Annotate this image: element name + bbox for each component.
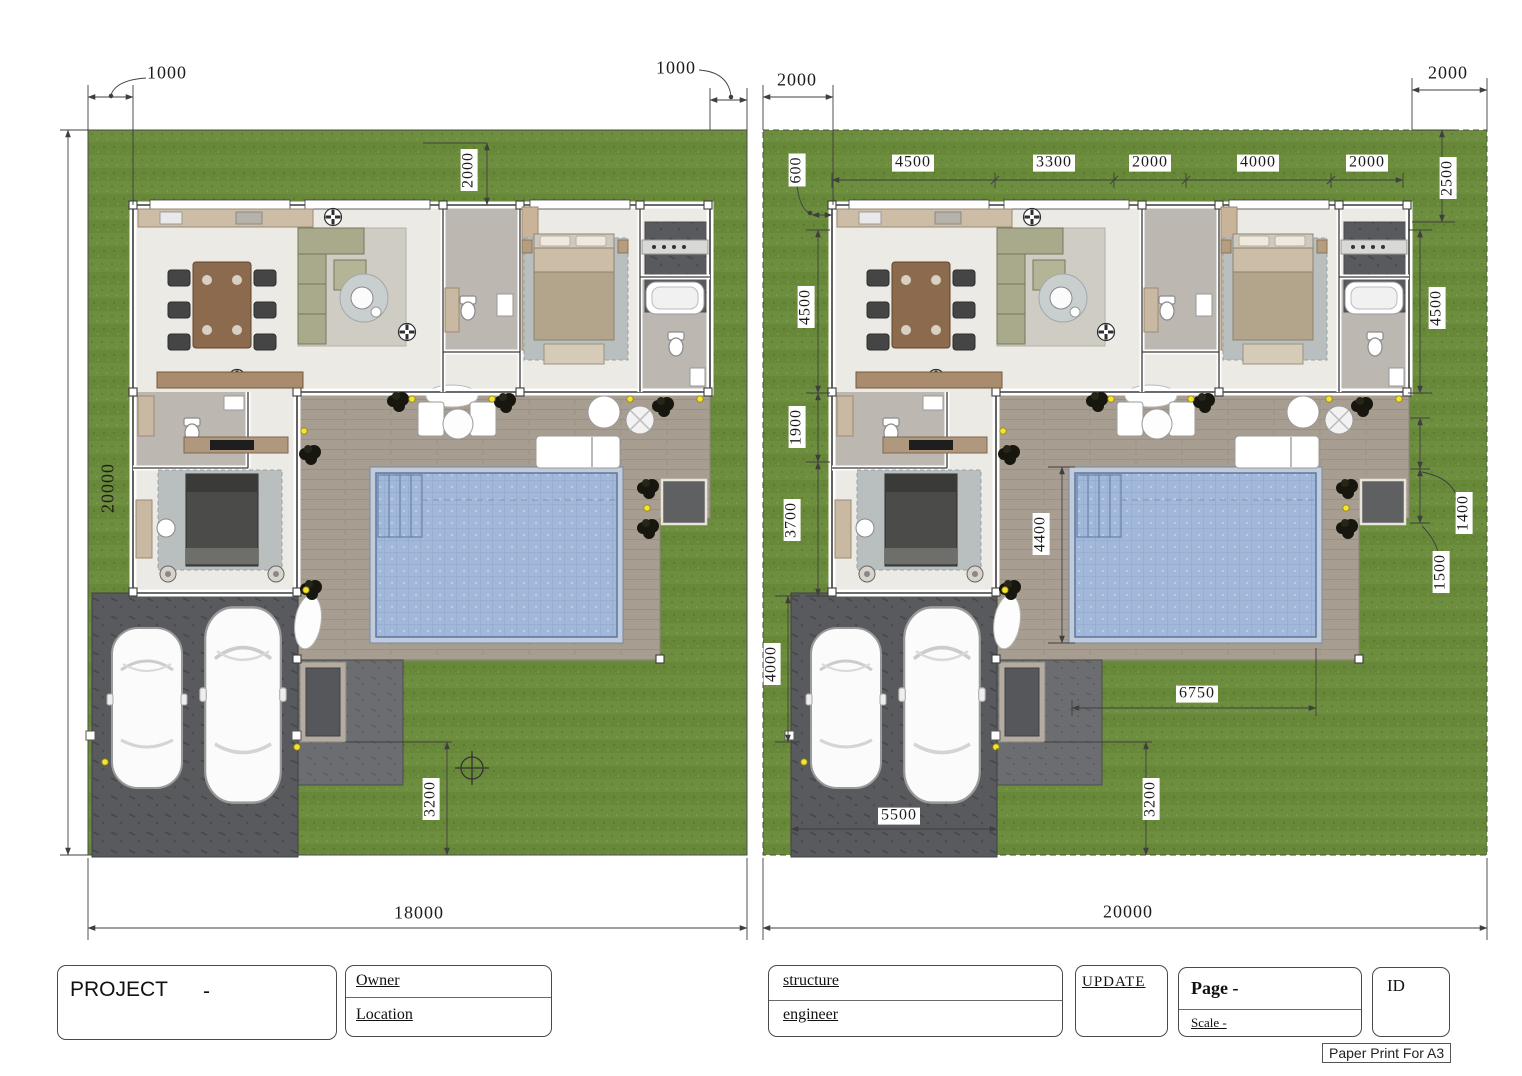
dim-label: 2000 <box>1346 155 1388 172</box>
dim-label: 4400 <box>1033 513 1050 555</box>
dim-label: 2500 <box>1440 157 1457 199</box>
dim-label: 20000 <box>99 463 118 513</box>
dim-label: 3200 <box>423 778 440 820</box>
dim-label: 1000 <box>147 64 187 83</box>
plan-drawing <box>0 0 1522 1076</box>
dim-label: 2000 <box>461 149 478 191</box>
page-label: Page - <box>1191 978 1238 999</box>
dim-label: 2000 <box>1129 155 1171 172</box>
location-label: Location <box>356 1006 413 1024</box>
paper-size-note: Paper Print For A3 <box>1322 1043 1451 1063</box>
id-box: ID <box>1372 967 1450 1037</box>
dim-label: 18000 <box>394 904 444 923</box>
dim-label: 1000 <box>656 59 696 78</box>
dim-label: 4000 <box>1237 155 1279 172</box>
project-label: PROJECT <box>70 978 168 1002</box>
owner-label: Owner <box>356 972 400 990</box>
scale-label: Scale - <box>1191 1015 1227 1031</box>
owner-location-box: Owner Location <box>345 965 552 1037</box>
update-label: UPDATE <box>1082 974 1146 991</box>
structure-engineer-box: structure engineer <box>768 965 1063 1037</box>
dim-label: 3300 <box>1033 155 1075 172</box>
project-value: - <box>203 980 210 1004</box>
dim-label: 1500 <box>1433 551 1450 593</box>
dim-label: 1400 <box>1456 492 1473 534</box>
dim-label: 6750 <box>1176 686 1218 703</box>
id-label: ID <box>1387 976 1405 996</box>
dim-label: 5500 <box>878 808 920 825</box>
dim-label: 4500 <box>798 286 815 328</box>
dim-label: 1900 <box>789 406 806 448</box>
update-box: UPDATE <box>1075 965 1168 1037</box>
dim-label: 4500 <box>892 155 934 172</box>
page-scale-box: Page - Scale - <box>1178 967 1362 1037</box>
dim-label: 600 <box>789 154 806 187</box>
dim-label: 4500 <box>1429 287 1446 329</box>
dim-label: 2000 <box>777 71 817 90</box>
dim-label: 3200 <box>1143 778 1160 820</box>
floor-plan-sheet: 1000 1000 2000 20000 3200 18000 2000 200… <box>0 0 1522 1076</box>
project-box: PROJECT - <box>57 965 337 1040</box>
dim-label: 3700 <box>784 499 801 541</box>
dim-label: 4000 <box>764 643 781 685</box>
engineer-label: engineer <box>783 1006 838 1024</box>
dim-label: 20000 <box>1103 903 1153 922</box>
structure-label: structure <box>783 972 839 990</box>
dim-label: 2000 <box>1428 64 1468 83</box>
